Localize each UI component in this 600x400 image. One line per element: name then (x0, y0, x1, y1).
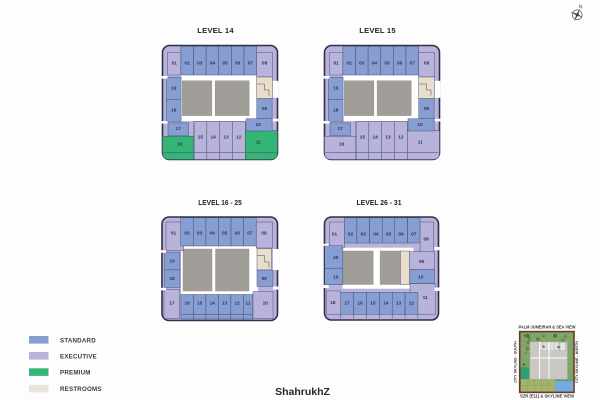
svg-text:19: 19 (333, 275, 339, 281)
svg-text:06: 06 (235, 61, 241, 67)
svg-text:17: 17 (338, 126, 344, 132)
svg-text:05: 05 (386, 232, 392, 238)
svg-text:11: 11 (246, 301, 251, 307)
svg-text:18: 18 (333, 107, 339, 113)
svg-text:03: 03 (197, 231, 203, 237)
svg-text:04: 04 (372, 61, 378, 67)
svg-text:18: 18 (171, 107, 177, 113)
svg-text:17: 17 (345, 300, 351, 306)
svg-text:07: 07 (411, 232, 417, 238)
svg-text:09: 09 (419, 259, 425, 265)
svg-text:05: 05 (384, 61, 390, 67)
svg-text:CITY SKYLINE - SOUTH: CITY SKYLINE - SOUTH (513, 341, 517, 383)
svg-text:LEVEL 15: LEVEL 15 (359, 26, 396, 35)
svg-text:01: 01 (334, 61, 340, 67)
svg-text:05: 05 (222, 231, 228, 237)
svg-text:06: 06 (398, 232, 404, 238)
svg-text:18: 18 (169, 276, 175, 282)
svg-text:15: 15 (360, 135, 366, 141)
svg-text:14: 14 (210, 301, 216, 307)
svg-text:16: 16 (339, 142, 345, 148)
svg-text:12: 12 (398, 135, 404, 141)
svg-text:13: 13 (223, 135, 229, 141)
svg-text:14: 14 (383, 300, 389, 306)
svg-text:16: 16 (357, 300, 363, 306)
svg-text:13: 13 (385, 135, 391, 141)
svg-text:14: 14 (373, 135, 379, 141)
svg-text:08: 08 (261, 231, 267, 237)
svg-text:09: 09 (262, 276, 268, 282)
svg-text:07: 07 (248, 61, 254, 67)
svg-text:18: 18 (330, 300, 336, 306)
svg-text:PREMIUM: PREMIUM (60, 370, 91, 377)
svg-text:20: 20 (333, 255, 339, 261)
svg-text:19: 19 (171, 85, 177, 91)
svg-text:CITY SKYLINE - NORTH: CITY SKYLINE - NORTH (575, 341, 579, 383)
svg-text:01: 01 (172, 61, 178, 67)
svg-text:01: 01 (332, 232, 338, 238)
svg-text:02: 02 (184, 231, 190, 237)
svg-text:12: 12 (235, 301, 241, 307)
svg-text:08: 08 (424, 237, 430, 243)
svg-text:RESTROOMS: RESTROOMS (60, 386, 102, 393)
svg-text:04: 04 (373, 232, 379, 238)
svg-text:03: 03 (197, 61, 203, 67)
svg-text:15: 15 (198, 135, 204, 141)
svg-text:04: 04 (210, 61, 216, 67)
svg-text:07: 07 (247, 231, 253, 237)
svg-text:14: 14 (211, 135, 217, 141)
svg-text:06: 06 (235, 231, 241, 237)
svg-text:16: 16 (185, 301, 191, 307)
svg-text:06: 06 (397, 61, 403, 67)
svg-text:19: 19 (333, 85, 339, 91)
svg-text:PALM JUMEIRAH & SEA VIEW: PALM JUMEIRAH & SEA VIEW (519, 324, 576, 329)
svg-text:17: 17 (176, 126, 182, 132)
svg-text:03: 03 (361, 232, 367, 238)
svg-text:11: 11 (423, 295, 428, 301)
svg-text:EXECUTIVE: EXECUTIVE (60, 353, 97, 360)
svg-text:12: 12 (236, 135, 242, 141)
svg-text:05: 05 (222, 61, 228, 67)
svg-text:08: 08 (262, 61, 268, 67)
svg-text:LEVEL 26 - 31: LEVEL 26 - 31 (357, 198, 403, 207)
svg-text:04: 04 (210, 231, 216, 237)
svg-text:10: 10 (263, 301, 269, 307)
svg-text:12: 12 (409, 300, 415, 306)
svg-text:09: 09 (262, 106, 268, 112)
svg-text:LEVEL 16 - 25: LEVEL 16 - 25 (198, 198, 242, 207)
svg-text:07: 07 (410, 61, 416, 67)
svg-text:ShahrukhZ: ShahrukhZ (275, 386, 330, 398)
svg-text:15: 15 (370, 300, 376, 306)
svg-text:11: 11 (256, 140, 261, 146)
svg-text:LEVEL 14: LEVEL 14 (197, 26, 234, 35)
svg-text:STANDARD: STANDARD (60, 337, 96, 344)
svg-text:13: 13 (396, 300, 402, 306)
svg-text:02: 02 (348, 232, 354, 238)
svg-text:09: 09 (424, 106, 430, 112)
svg-text:02: 02 (185, 61, 191, 67)
svg-text:16: 16 (177, 142, 183, 148)
svg-text:17: 17 (169, 301, 175, 307)
svg-text:10: 10 (417, 122, 423, 128)
svg-text:15: 15 (197, 301, 203, 307)
svg-text:11: 11 (418, 140, 423, 146)
svg-text:08: 08 (424, 61, 430, 67)
svg-text:01: 01 (171, 231, 177, 237)
svg-text:02: 02 (347, 61, 353, 67)
svg-text:10: 10 (255, 122, 261, 128)
svg-text:13: 13 (222, 301, 228, 307)
svg-text:03: 03 (359, 61, 365, 67)
svg-text:10: 10 (418, 275, 424, 281)
svg-text:19: 19 (169, 259, 175, 265)
svg-text:SZR (E11) & SKYLINE VIEW: SZR (E11) & SKYLINE VIEW (520, 394, 574, 399)
